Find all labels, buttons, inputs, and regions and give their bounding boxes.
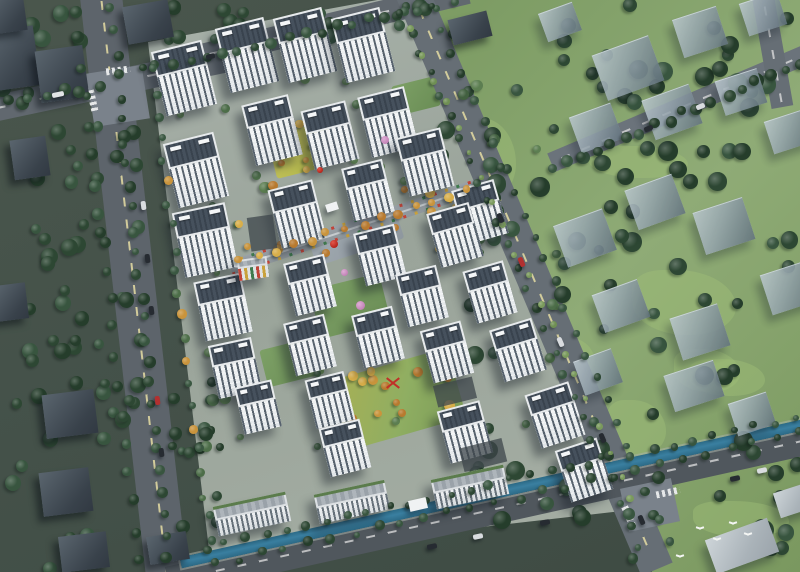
pink-blossom-tree xyxy=(356,301,365,310)
bird xyxy=(713,537,721,541)
bird-wing xyxy=(699,526,704,529)
car xyxy=(757,467,768,474)
car xyxy=(140,200,146,210)
car xyxy=(427,543,438,550)
car xyxy=(148,305,154,315)
bird-wing xyxy=(679,554,684,557)
pink-blossom-tree xyxy=(381,136,389,144)
car xyxy=(517,256,526,267)
car xyxy=(496,212,505,223)
car xyxy=(144,253,150,263)
car xyxy=(540,519,551,526)
bird-wing xyxy=(732,521,737,524)
aerial-masterplan-render xyxy=(0,0,800,572)
bird-wing xyxy=(716,537,721,540)
entrance-gate xyxy=(408,497,428,512)
red-sculpture xyxy=(330,240,338,248)
bird-wing xyxy=(747,532,752,535)
pink-blossom-tree xyxy=(341,269,348,276)
car xyxy=(695,102,705,110)
parking-court xyxy=(459,438,507,472)
parking-court xyxy=(433,376,477,407)
details-layer xyxy=(0,0,800,572)
car xyxy=(52,90,65,97)
red-canopy-sculpture xyxy=(385,375,401,391)
car xyxy=(637,514,646,525)
entrance-gate xyxy=(325,201,339,212)
car xyxy=(730,475,741,482)
car xyxy=(158,447,164,457)
bird xyxy=(676,554,684,558)
car xyxy=(205,53,215,60)
car xyxy=(473,533,484,540)
car xyxy=(598,432,607,443)
bird xyxy=(696,526,704,530)
bird xyxy=(744,532,752,536)
car xyxy=(556,336,565,347)
parking-court xyxy=(247,214,277,251)
red-sculpture xyxy=(317,167,323,173)
car xyxy=(154,395,160,405)
car xyxy=(643,124,653,132)
bird xyxy=(729,521,737,525)
